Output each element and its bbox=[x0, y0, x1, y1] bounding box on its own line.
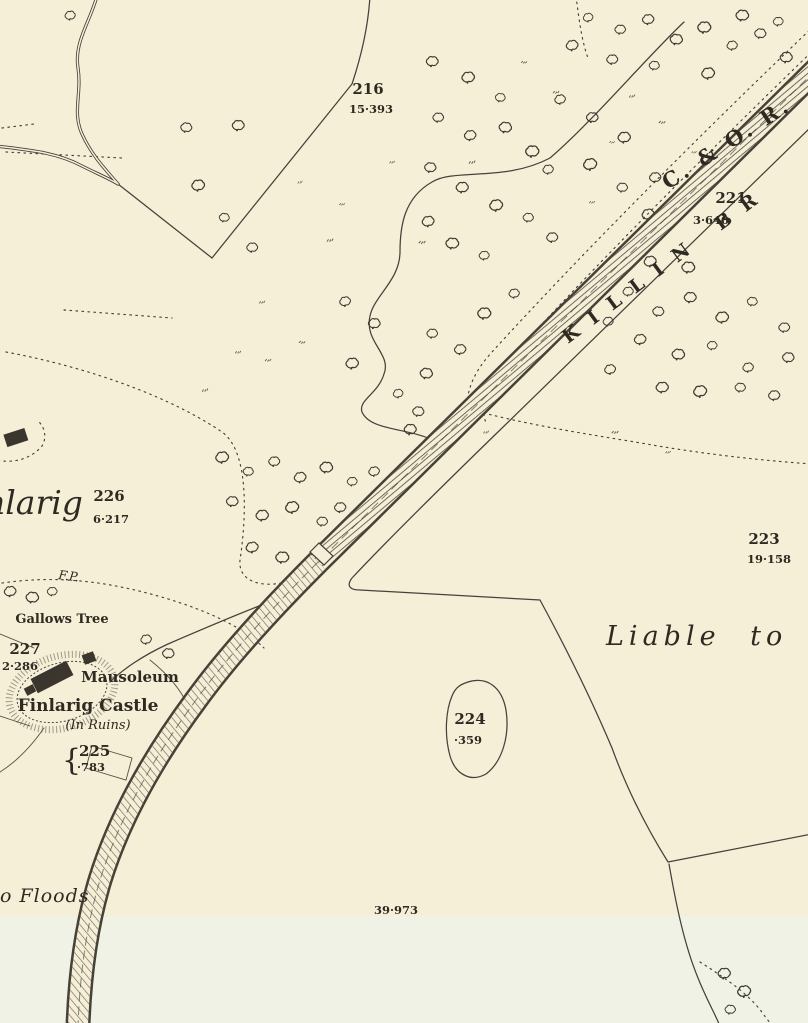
parcel-223-area: 19·158 bbox=[747, 552, 791, 566]
map-viewport: C. & O. R. KILLIN BR 216 15·393 221 3·64… bbox=[0, 0, 808, 1023]
parcel-216-number: 216 bbox=[352, 80, 383, 98]
parcel-224-number: 224 bbox=[454, 710, 485, 728]
parcel-227-area: 2·286 bbox=[2, 659, 38, 673]
parcel-223-number: 223 bbox=[748, 530, 779, 548]
parcel-225-number: 225 bbox=[79, 742, 110, 760]
parcel-226-area: 6·217 bbox=[93, 512, 129, 526]
parcel-221-number: 221 bbox=[715, 189, 746, 207]
parcel-225-area: ·783 bbox=[77, 760, 105, 774]
mausoleum-label: Mausoleum bbox=[81, 668, 179, 686]
gallows-tree-label: Gallows Tree bbox=[15, 612, 108, 627]
parcel-224-area: ·359 bbox=[454, 733, 482, 747]
paper-lower-band bbox=[0, 916, 808, 1023]
castle-ruins-label: (In Ruins) bbox=[65, 718, 130, 733]
parcel-227-number: 227 bbox=[9, 640, 40, 658]
finlarig-castle-label: Finlarig Castle bbox=[18, 696, 159, 716]
parcel-226-number: 226 bbox=[93, 487, 124, 505]
parcel-area-39973: 39·973 bbox=[374, 903, 418, 917]
parcel-216-area: 15·393 bbox=[349, 102, 393, 116]
footpath-label: F.P. bbox=[57, 567, 80, 585]
floods-label-bottom: o Floods bbox=[0, 885, 90, 907]
parcel-221-area: 3·640 bbox=[693, 213, 729, 227]
liable-to-floods-label: Liable to bbox=[605, 621, 787, 652]
place-finlarig: nlarig bbox=[0, 483, 83, 522]
os-historic-map: C. & O. R. KILLIN BR 216 15·393 221 3·64… bbox=[0, 0, 808, 1023]
